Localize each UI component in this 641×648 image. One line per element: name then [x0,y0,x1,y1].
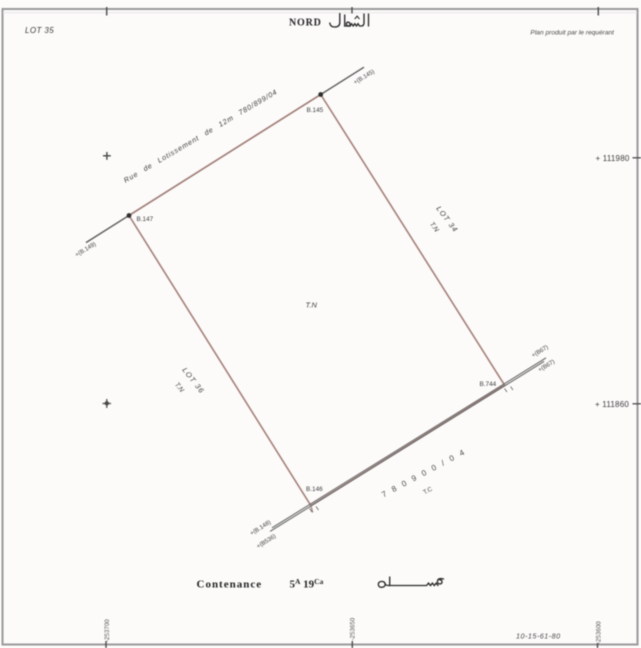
svg-text:Contenance: Contenance [197,579,263,591]
svg-text:B.145: B.145 [307,107,324,114]
svg-text:B.744: B.744 [480,381,497,388]
svg-text:-253700: -253700 [104,619,111,642]
svg-text:B.147: B.147 [137,216,154,223]
svg-text:Plan produit par le requérant: Plan produit par le requérant [530,30,615,37]
svg-text:T.N: T.N [306,301,318,310]
svg-text:+ 111860: + 111860 [595,400,629,409]
svg-text:+ 111980: + 111980 [596,154,630,163]
svg-text:LOT 35: LOT 35 [25,26,54,35]
svg-text:B.146: B.146 [306,486,323,493]
svg-text:NORD: NORD [289,18,322,29]
svg-text:-253650: -253650 [350,617,357,640]
svg-text:-253600: -253600 [596,621,603,644]
svg-text:10-15-61-80: 10-15-61-80 [516,632,561,641]
